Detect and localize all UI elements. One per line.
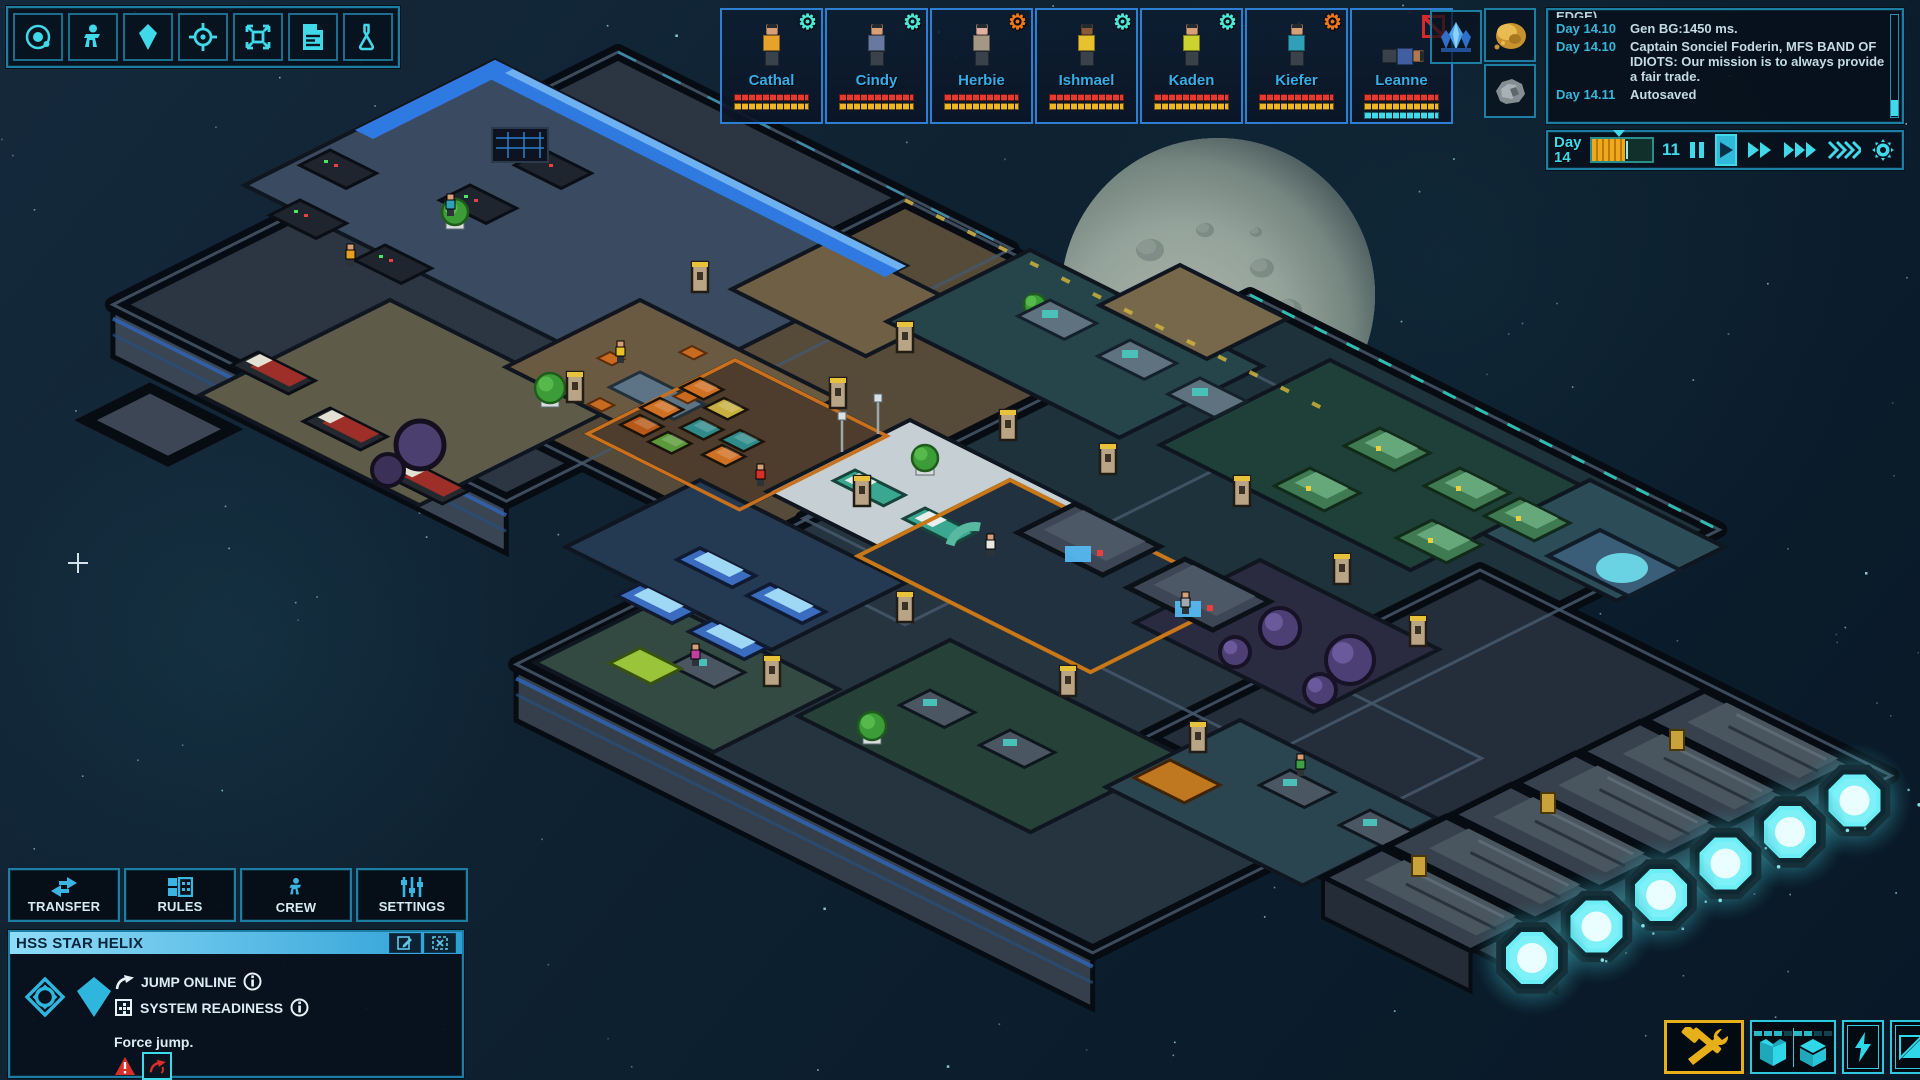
rock-ore-icon bbox=[1492, 75, 1528, 107]
expand-view-icon[interactable] bbox=[233, 13, 283, 61]
ship-menu-tabs: TRANSFER RULES CREW SETTINGS bbox=[8, 868, 468, 922]
tab-transfer[interactable]: TRANSFER bbox=[8, 868, 120, 922]
resource-rock-slot[interactable] bbox=[1484, 64, 1536, 118]
crew-sprite bbox=[971, 24, 993, 68]
day-progress-tick bbox=[1626, 141, 1628, 159]
crew-vitals-bars bbox=[944, 94, 1019, 110]
log-clipped-line: EDGE) bbox=[1556, 9, 1888, 18]
tab-label: TRANSFER bbox=[28, 899, 100, 914]
build-menu bbox=[1664, 1020, 1920, 1074]
pause-button[interactable] bbox=[1689, 141, 1705, 159]
status-label: JUMP ONLINE bbox=[141, 974, 236, 990]
crew-sprite bbox=[761, 24, 783, 68]
log-text: Autosaved bbox=[1630, 87, 1888, 102]
crew-name: Herbie bbox=[932, 72, 1031, 89]
readiness-grid-icon bbox=[114, 998, 133, 1017]
warning-icon bbox=[114, 1056, 136, 1076]
build-tools-icon bbox=[1678, 1027, 1730, 1067]
event-log-panel[interactable]: EDGE) Day 14.10 Gen BG:1450 ms. Day 14.1… bbox=[1546, 8, 1904, 124]
crew-name: Ishmael bbox=[1037, 72, 1136, 89]
log-entry[interactable]: Day 14.10 Captain Sonciel Foderin, MFS B… bbox=[1556, 39, 1888, 84]
speed-3x-button[interactable] bbox=[1783, 141, 1817, 159]
day-progress-fill bbox=[1592, 139, 1625, 161]
crew-sprite bbox=[1380, 45, 1424, 67]
force-jump-arrow-icon bbox=[148, 1058, 166, 1074]
sliders-icon bbox=[400, 877, 424, 897]
day-label: Day bbox=[1554, 135, 1582, 150]
storage-menu-button[interactable] bbox=[1750, 1020, 1836, 1074]
crew-card-cathal[interactable]: ⚙ Cathal bbox=[720, 8, 823, 124]
crew-person-icon bbox=[285, 876, 307, 898]
crew-card-cindy[interactable]: ⚙ Cindy bbox=[825, 8, 928, 124]
log-text: Captain Sonciel Foderin, MFS BAND OF IDI… bbox=[1630, 39, 1888, 84]
ship-panel-body: JUMP ONLINE SYSTEM READINESS Force jump. bbox=[10, 954, 462, 1074]
resource-crystal-slot[interactable] bbox=[1430, 10, 1482, 64]
crew-card-kaden[interactable]: ⚙ Kaden bbox=[1140, 8, 1243, 124]
target-crosshair-icon[interactable] bbox=[178, 13, 228, 61]
tab-label: RULES bbox=[157, 899, 202, 914]
resource-gold-slot[interactable] bbox=[1484, 8, 1536, 62]
rename-ship-button[interactable] bbox=[389, 933, 421, 953]
day-progress-marker bbox=[1613, 130, 1625, 137]
crew-card-kiefer[interactable]: ⚙ Kiefer bbox=[1245, 8, 1348, 124]
crew-name: Cathal bbox=[722, 72, 821, 89]
task-gear-icon[interactable]: ⚙ bbox=[903, 12, 922, 34]
tab-crew[interactable]: CREW bbox=[240, 868, 352, 922]
hour-counter: 11 bbox=[1662, 140, 1680, 160]
log-scrollbar[interactable] bbox=[1890, 14, 1899, 118]
force-jump-controls bbox=[114, 1052, 172, 1080]
storage-open-box-icon bbox=[1758, 1039, 1788, 1067]
log-day: Day 14.11 bbox=[1556, 87, 1624, 102]
info-icon[interactable] bbox=[290, 998, 309, 1017]
crew-vitals-bars bbox=[839, 94, 914, 110]
crew-card-ishmael[interactable]: ⚙ Ishmael bbox=[1035, 8, 1138, 124]
hull-view-button[interactable] bbox=[1890, 1020, 1920, 1074]
rules-grid-icon bbox=[167, 877, 193, 897]
tab-rules[interactable]: RULES bbox=[124, 868, 236, 922]
main-toolbar bbox=[6, 6, 400, 68]
day-value: 14 bbox=[1554, 150, 1582, 165]
task-gear-icon[interactable]: ⚙ bbox=[798, 12, 817, 34]
ship-name: HSS STAR HELIX bbox=[16, 935, 386, 952]
crystal-cluster-icon bbox=[1437, 20, 1475, 54]
jump-arrow-icon bbox=[114, 973, 134, 991]
task-gear-icon[interactable]: ⚙ bbox=[1113, 12, 1132, 34]
gold-ore-icon bbox=[1491, 17, 1529, 53]
force-jump-hint: Force jump. bbox=[114, 1034, 193, 1050]
log-day: Day 14.10 bbox=[1556, 39, 1624, 84]
force-jump-button[interactable] bbox=[142, 1052, 172, 1080]
capacity-bars bbox=[1794, 1031, 1832, 1036]
time-settings-gear-icon[interactable] bbox=[1871, 138, 1895, 162]
ship-header: HSS STAR HELIX bbox=[10, 932, 462, 954]
crew-name: Kaden bbox=[1142, 72, 1241, 89]
storage-cube-half[interactable] bbox=[1793, 1028, 1833, 1067]
tab-label: SETTINGS bbox=[379, 899, 446, 914]
status-label: SYSTEM READINESS bbox=[140, 1000, 283, 1016]
crew-card-herbie[interactable]: ⚙ Herbie bbox=[930, 8, 1033, 124]
crew-sprite bbox=[1181, 24, 1203, 68]
crew-vitals-bars bbox=[1364, 94, 1439, 119]
day-progress-bar bbox=[1590, 137, 1654, 163]
resource-crystal-icon[interactable] bbox=[123, 13, 173, 61]
power-overlay-button[interactable] bbox=[1842, 1020, 1884, 1074]
deselect-ship-button[interactable] bbox=[424, 933, 456, 953]
play-button[interactable] bbox=[1715, 134, 1737, 166]
crew-vitals-bars bbox=[734, 94, 809, 110]
storage-open-box-half[interactable] bbox=[1754, 1028, 1793, 1067]
info-icon[interactable] bbox=[243, 972, 262, 991]
log-day: Day 14.10 bbox=[1556, 21, 1624, 36]
log-entry[interactable]: Day 14.10 Gen BG:1450 ms. bbox=[1556, 21, 1888, 36]
task-gear-icon[interactable]: ⚙ bbox=[1218, 12, 1237, 34]
faction-diamond-icon bbox=[24, 976, 66, 1018]
crew-name: Cindy bbox=[827, 72, 926, 89]
log-entry[interactable]: Day 14.11 Autosaved bbox=[1556, 87, 1888, 102]
build-tools-button[interactable] bbox=[1664, 1020, 1744, 1074]
crew-sprite bbox=[866, 24, 888, 68]
day-indicator: Day 14 bbox=[1554, 135, 1582, 165]
pencil-icon bbox=[397, 936, 413, 950]
capacity-bars bbox=[1754, 1031, 1792, 1036]
crew-person-icon[interactable] bbox=[68, 13, 118, 61]
hull-view-icon bbox=[1898, 1034, 1920, 1060]
crew-roster: ⚙ Cathal ⚙ Cindy ⚙ Herbie ⚙ Ishmael ⚙ Ka… bbox=[720, 8, 1453, 124]
readiness-status-row[interactable]: SYSTEM READINESS bbox=[114, 998, 309, 1017]
log-text: Gen BG:1450 ms. bbox=[1630, 21, 1888, 36]
ship-class-kite-icon bbox=[76, 976, 112, 1018]
ship-logos bbox=[24, 976, 112, 1018]
transfer-arrows-icon bbox=[49, 877, 79, 897]
dashed-select-x-icon bbox=[432, 936, 448, 950]
speed-2x-button[interactable] bbox=[1747, 141, 1773, 159]
game-viewport[interactable]: ⚙ Cathal ⚙ Cindy ⚙ Herbie ⚙ Ishmael ⚙ Ka… bbox=[0, 0, 1920, 1080]
tab-settings[interactable]: SETTINGS bbox=[356, 868, 468, 922]
crew-vitals-bars bbox=[1154, 94, 1229, 110]
power-bolt-icon bbox=[1852, 1032, 1874, 1062]
task-gear-icon[interactable]: ⚙ bbox=[1008, 12, 1027, 34]
crew-sprite bbox=[1286, 24, 1308, 68]
crew-vitals-bars bbox=[1259, 94, 1334, 110]
crew-name: Kiefer bbox=[1247, 72, 1346, 89]
research-flask-icon[interactable] bbox=[343, 13, 393, 61]
jump-status-row[interactable]: JUMP ONLINE bbox=[114, 972, 262, 991]
crew-vitals-bars bbox=[1049, 94, 1124, 110]
tab-label: CREW bbox=[276, 900, 317, 915]
task-gear-icon[interactable]: ⚙ bbox=[1323, 12, 1342, 34]
log-scroll-thumb[interactable] bbox=[1891, 100, 1898, 116]
orbit-system-icon[interactable] bbox=[13, 13, 63, 61]
report-document-icon[interactable] bbox=[288, 13, 338, 61]
crew-name: Leanne bbox=[1352, 72, 1451, 89]
speed-max-button[interactable] bbox=[1827, 141, 1861, 159]
time-control-panel: Day 14 11 bbox=[1546, 130, 1904, 170]
storage-cube-icon bbox=[1798, 1039, 1828, 1067]
ship-info-panel: HSS STAR HELIX JUMP ONLINE SYSTEM READIN… bbox=[8, 930, 464, 1078]
crew-sprite bbox=[1076, 24, 1098, 68]
